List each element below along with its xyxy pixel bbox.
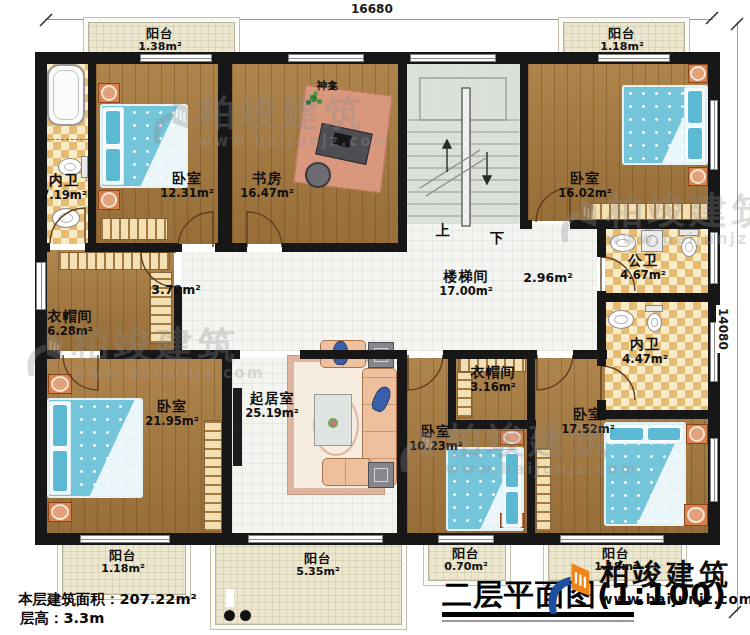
- floor-plan-canvas: 16680 14080: [0, 0, 750, 635]
- brand-name: 柏竣建筑: [600, 560, 750, 589]
- brand-url: www.baijunjz.com: [600, 593, 750, 607]
- dimension-ticks: [0, 0, 750, 635]
- brand-logo-icon: [538, 560, 596, 616]
- brand-logo: 柏竣建筑www.baijunjz.com: [538, 560, 750, 616]
